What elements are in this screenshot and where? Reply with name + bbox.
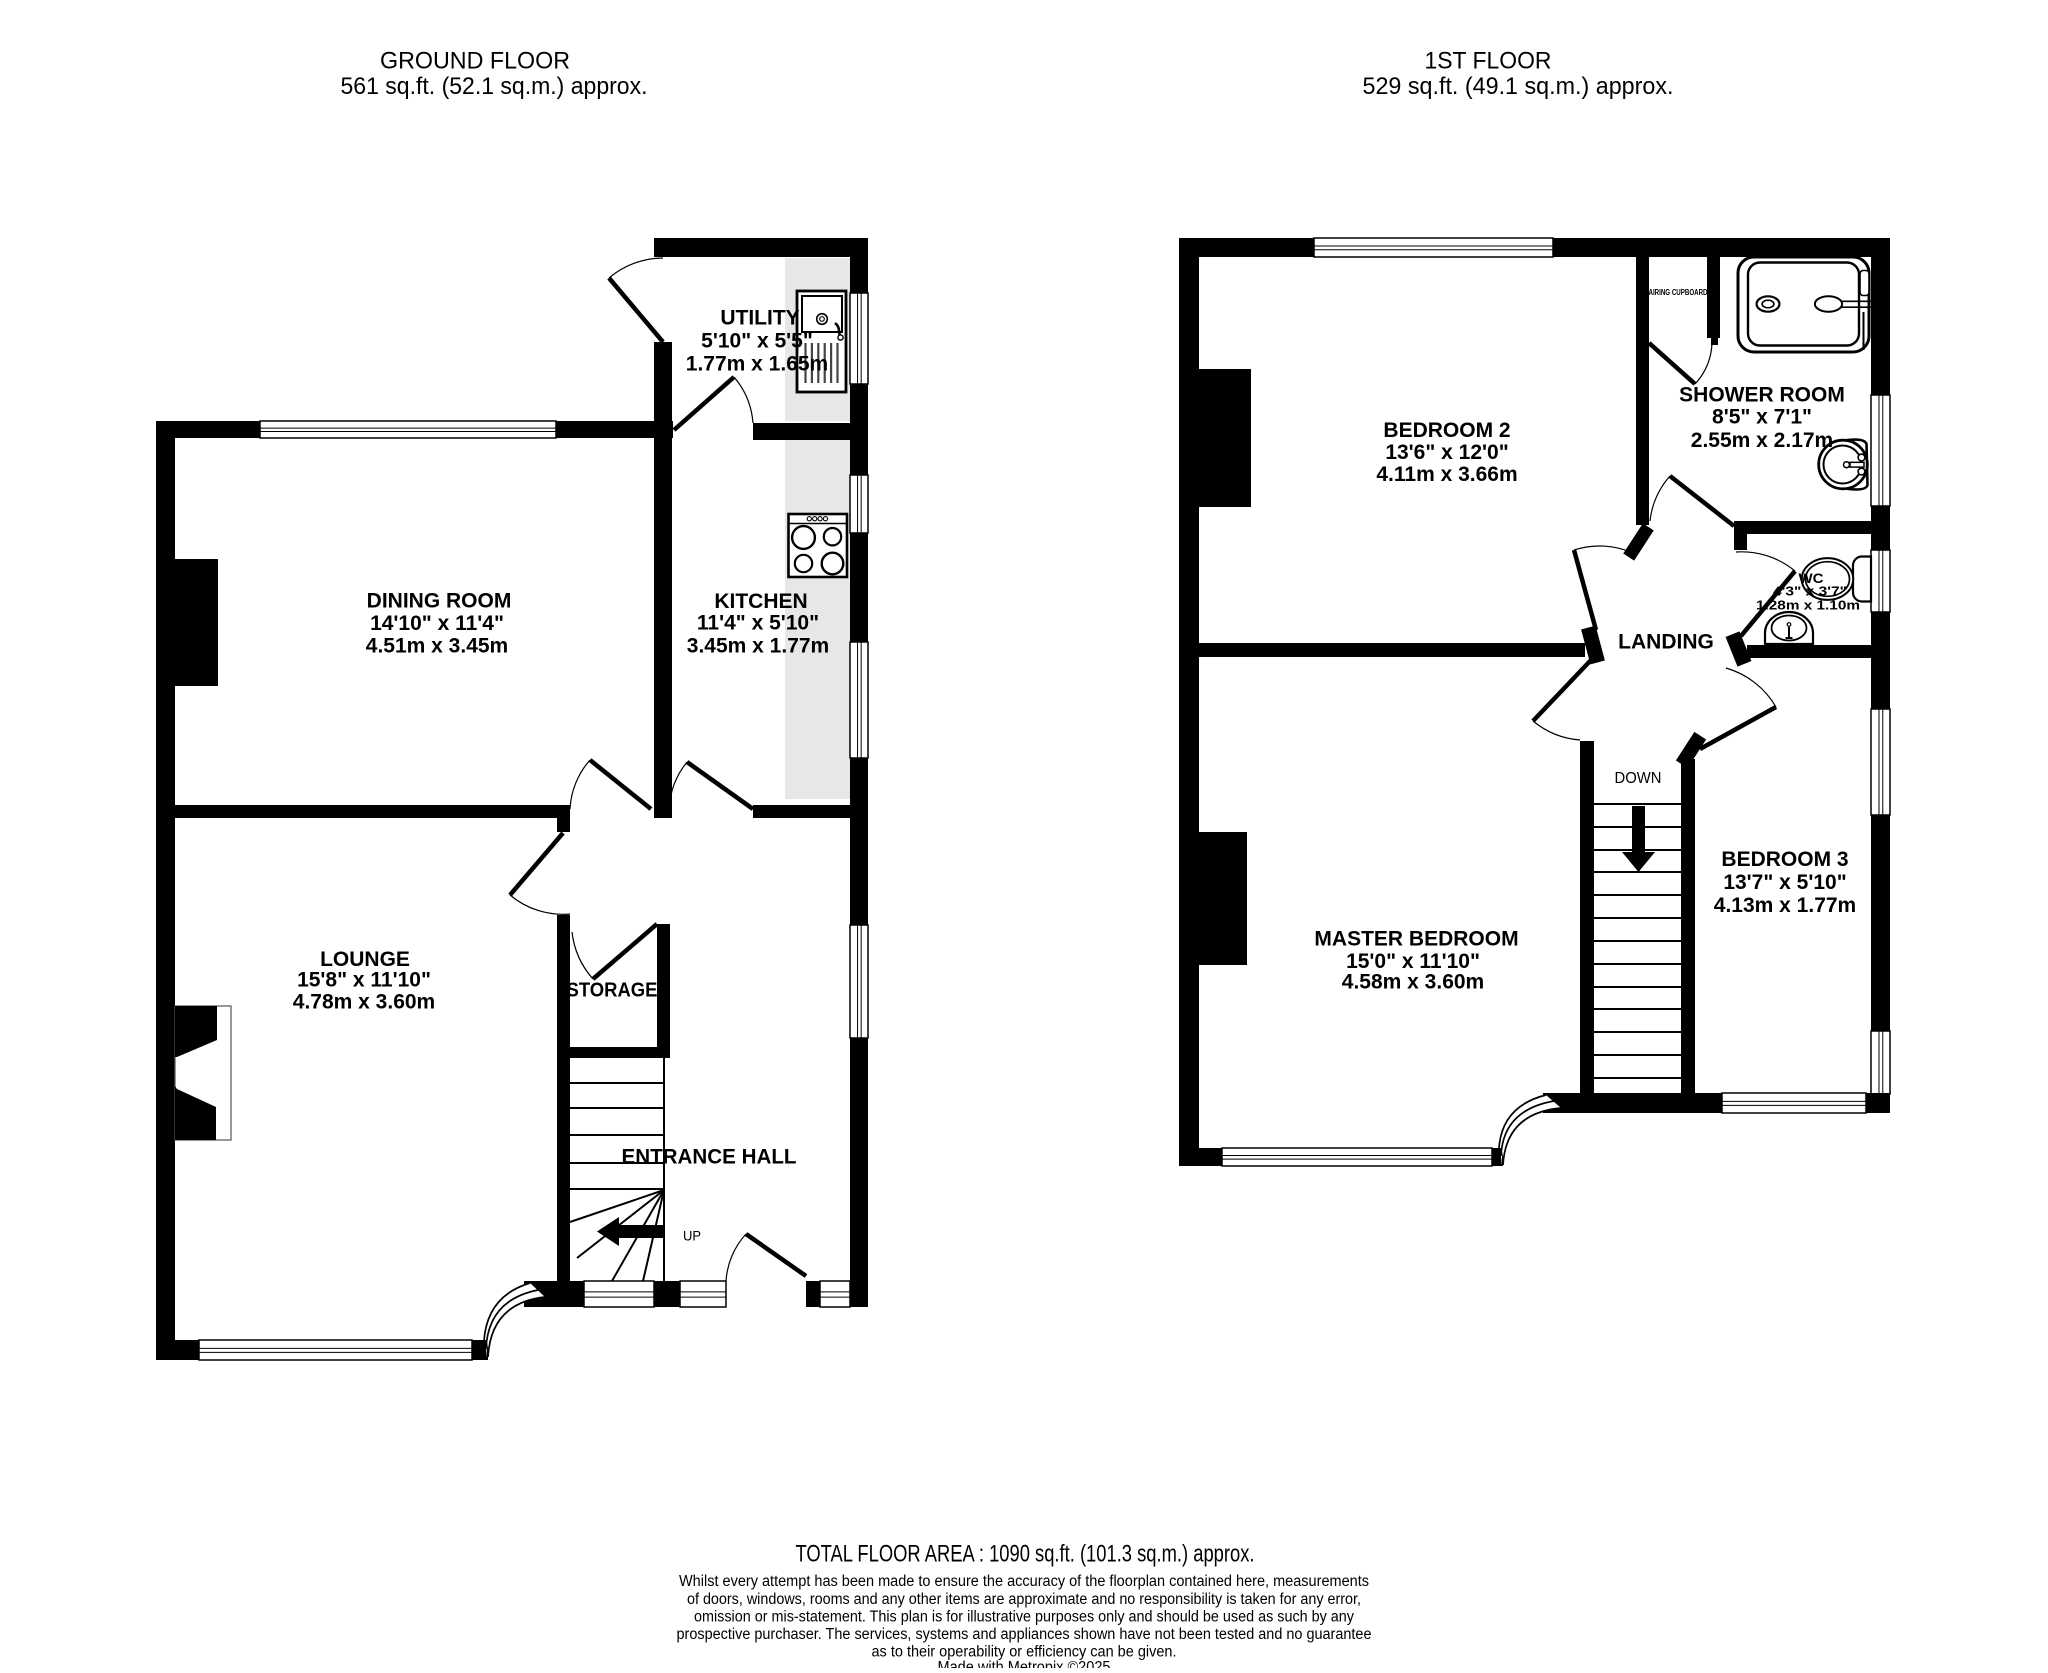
svg-text:13'7" x 5'10": 13'7" x 5'10" <box>1723 871 1846 894</box>
svg-text:561 sq.ft. (52.1 sq.m.) approx: 561 sq.ft. (52.1 sq.m.) approx. <box>341 73 648 100</box>
svg-text:DINING ROOM: DINING ROOM <box>367 590 512 613</box>
svg-text:Made with Metropix ©2025: Made with Metropix ©2025 <box>938 1659 1111 1668</box>
svg-text:LANDING: LANDING <box>1618 631 1714 654</box>
svg-text:5'10" x 5'5": 5'10" x 5'5" <box>701 330 813 353</box>
svg-text:1ST FLOOR: 1ST FLOOR <box>1425 48 1552 75</box>
svg-text:4.78m x 3.60m: 4.78m x 3.60m <box>293 991 435 1014</box>
svg-text:DOWN: DOWN <box>1615 770 1662 787</box>
svg-text:4'3" x 3'7": 4'3" x 3'7" <box>1773 584 1847 599</box>
svg-text:15'8" x 11'10": 15'8" x 11'10" <box>297 969 431 992</box>
svg-text:14'10" x 11'4": 14'10" x 11'4" <box>370 612 504 635</box>
svg-text:omission or mis-statement. Thi: omission or mis-statement. This plan is … <box>694 1608 1354 1625</box>
svg-text:8'5" x 7'1": 8'5" x 7'1" <box>1712 406 1812 429</box>
svg-text:BEDROOM 3: BEDROOM 3 <box>1721 848 1848 871</box>
svg-text:13'6" x 12'0": 13'6" x 12'0" <box>1385 441 1508 464</box>
svg-text:Whilst every attempt has been: Whilst every attempt has been made to en… <box>679 1573 1369 1590</box>
svg-text:UP: UP <box>683 1228 701 1244</box>
svg-text:STORAGE: STORAGE <box>567 980 658 1002</box>
svg-text:4.13m x 1.77m: 4.13m x 1.77m <box>1714 894 1856 917</box>
svg-text:of doors, windows, rooms and a: of doors, windows, rooms and any other i… <box>687 1591 1361 1608</box>
svg-text:BEDROOM 2: BEDROOM 2 <box>1383 419 1510 442</box>
svg-text:11'4" x 5'10": 11'4" x 5'10" <box>697 611 819 634</box>
svg-text:4.51m x 3.45m: 4.51m x 3.45m <box>366 635 508 658</box>
svg-text:4.58m x 3.60m: 4.58m x 3.60m <box>1342 971 1484 994</box>
svg-text:TOTAL FLOOR AREA : 1090 sq.ft.: TOTAL FLOOR AREA : 1090 sq.ft. (101.3 sq… <box>796 1541 1255 1568</box>
svg-text:KITCHEN: KITCHEN <box>714 590 807 613</box>
svg-text:1.28m x 1.10m: 1.28m x 1.10m <box>1756 598 1860 613</box>
svg-text:prospective purchaser. The ser: prospective purchaser. The services, sys… <box>677 1626 1372 1643</box>
svg-text:3.45m x 1.77m: 3.45m x 1.77m <box>687 634 829 657</box>
svg-text:4.11m x 3.66m: 4.11m x 3.66m <box>1376 463 1517 486</box>
svg-text:2.55m x 2.17m: 2.55m x 2.17m <box>1691 429 1833 452</box>
svg-text:ENTRANCE HALL: ENTRANCE HALL <box>622 1146 797 1169</box>
svg-text:MASTER BEDROOM: MASTER BEDROOM <box>1314 928 1518 951</box>
svg-text:UTILITY: UTILITY <box>720 307 799 330</box>
svg-text:GROUND FLOOR: GROUND FLOOR <box>380 48 570 75</box>
svg-text:1.77m x 1.65m: 1.77m x 1.65m <box>686 353 828 376</box>
svg-text:529 sq.ft. (49.1 sq.m.) approx: 529 sq.ft. (49.1 sq.m.) approx. <box>1363 73 1674 100</box>
svg-text:AIRING CUPBOARD: AIRING CUPBOARD <box>1649 288 1708 297</box>
svg-text:SHOWER ROOM: SHOWER ROOM <box>1679 384 1845 407</box>
